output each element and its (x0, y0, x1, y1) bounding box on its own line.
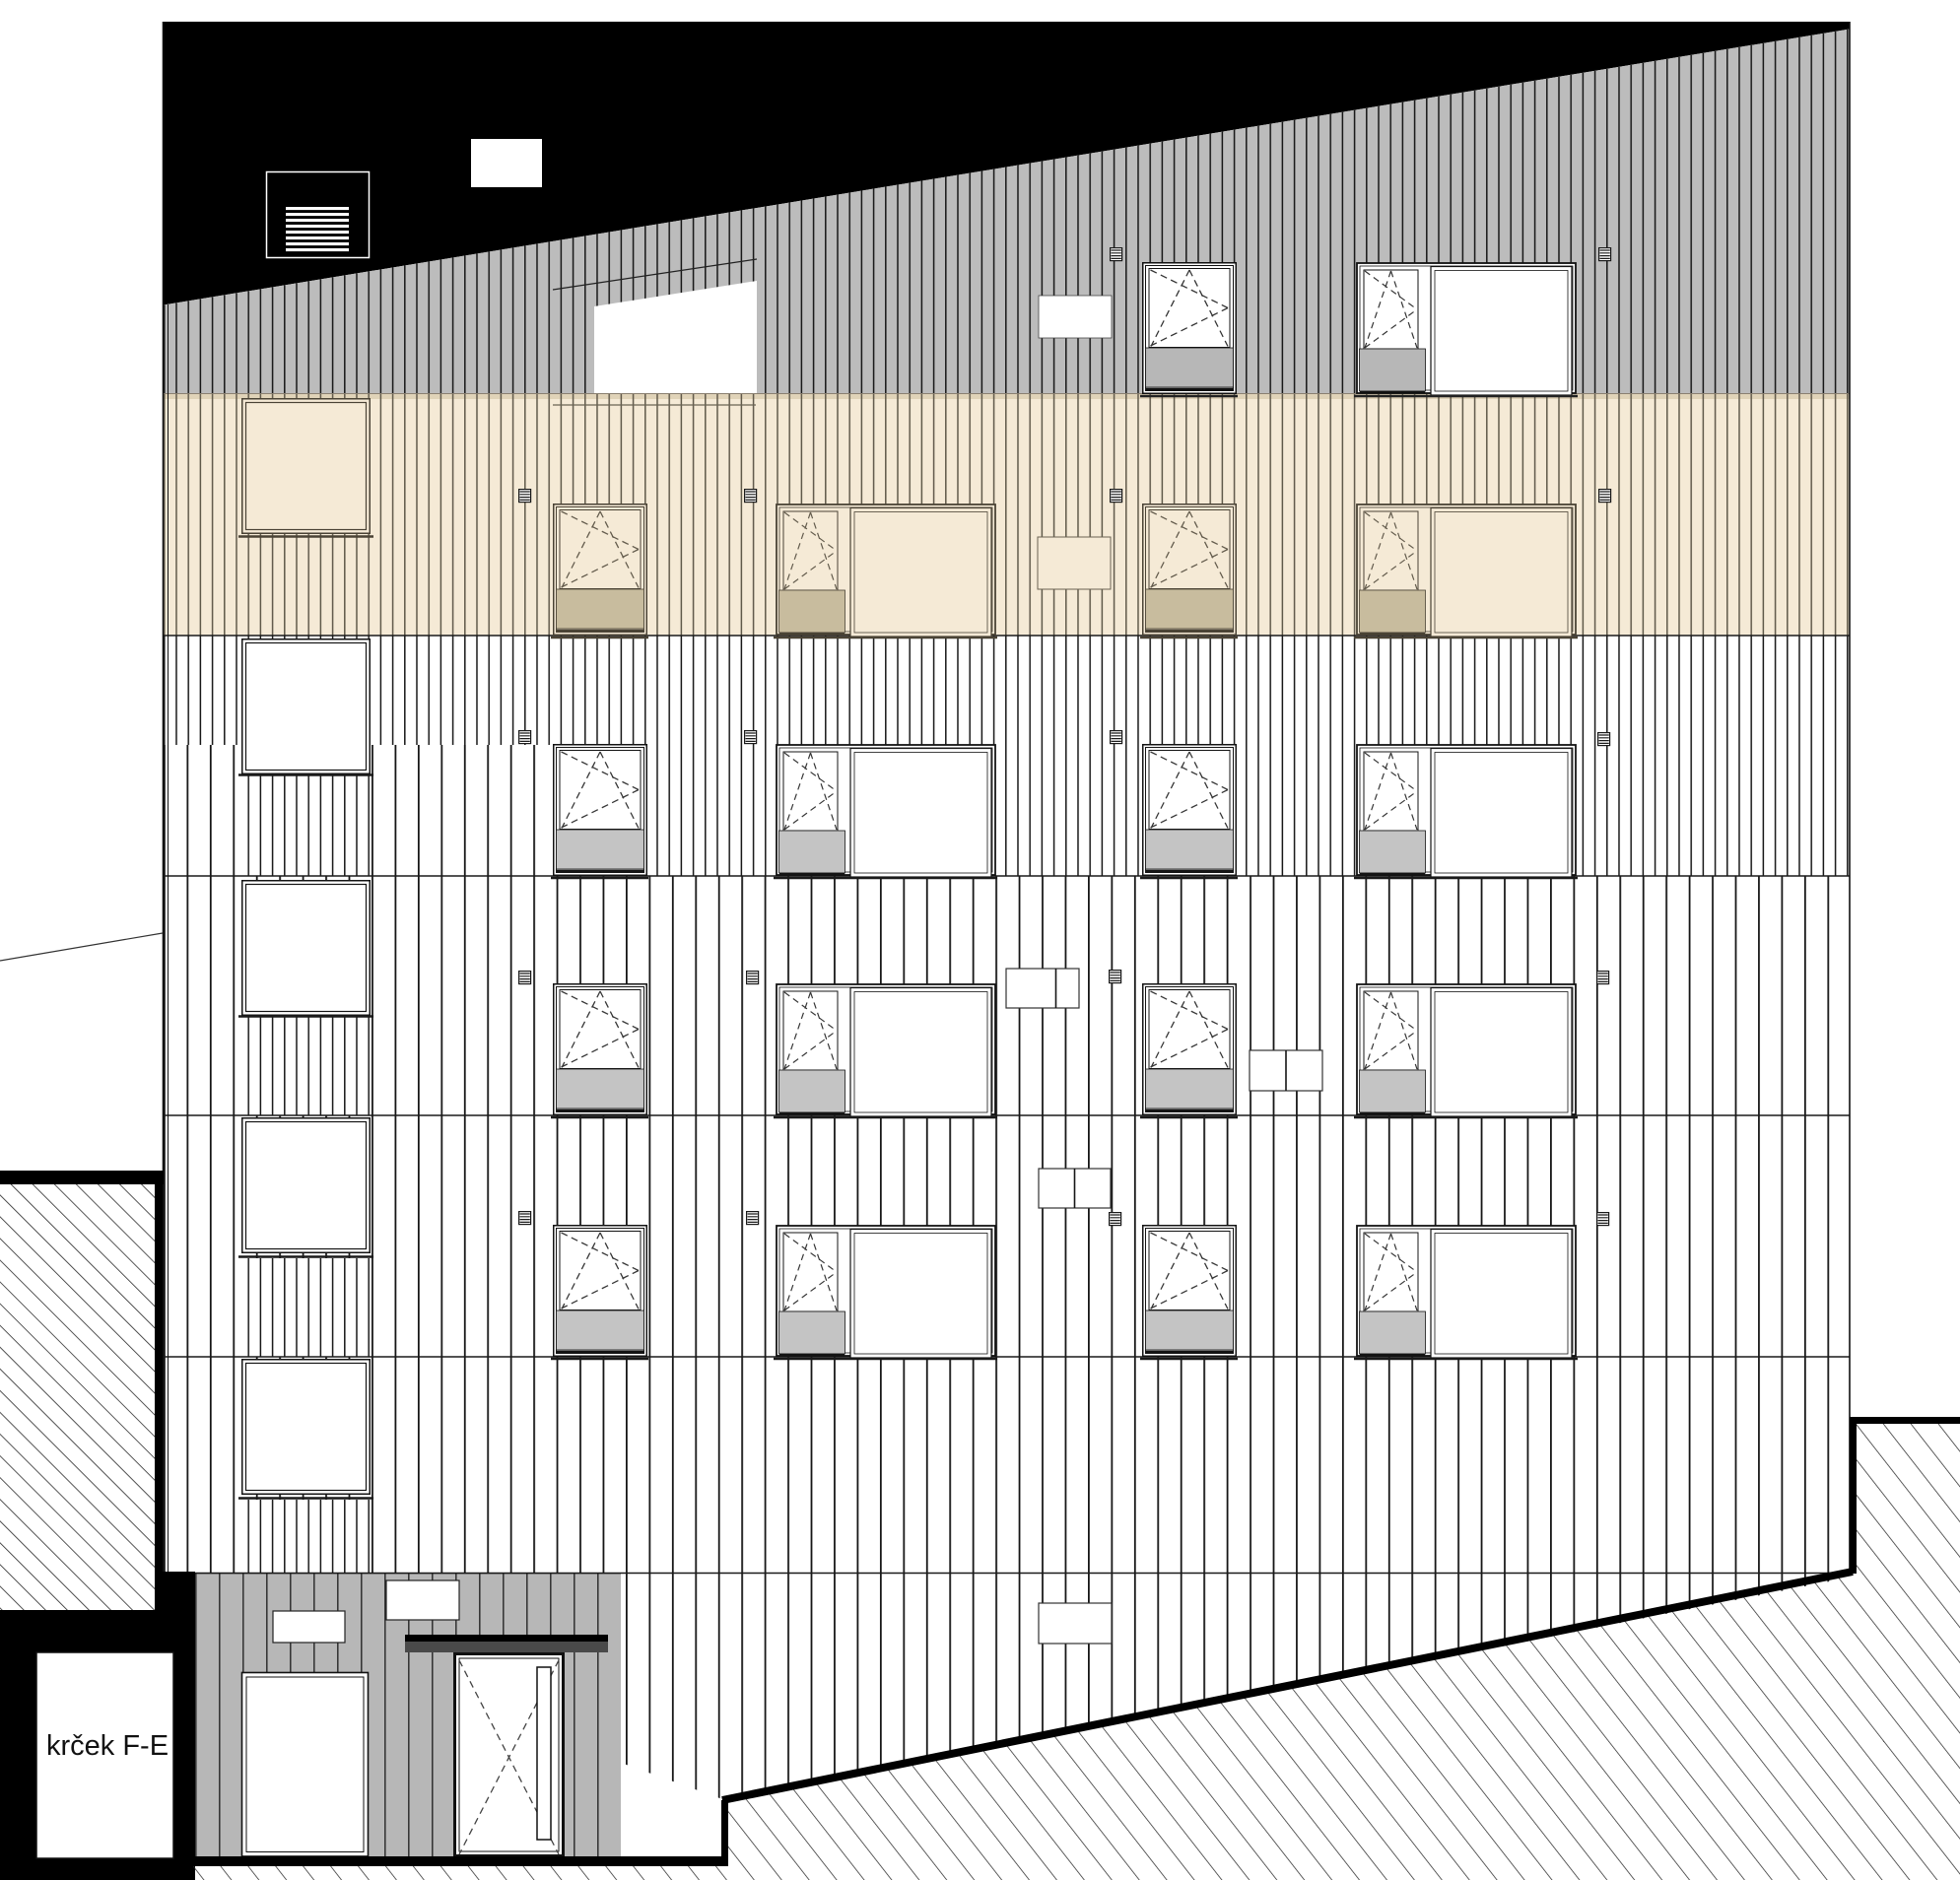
svg-text:krček F-E: krček F-E (46, 1730, 169, 1762)
